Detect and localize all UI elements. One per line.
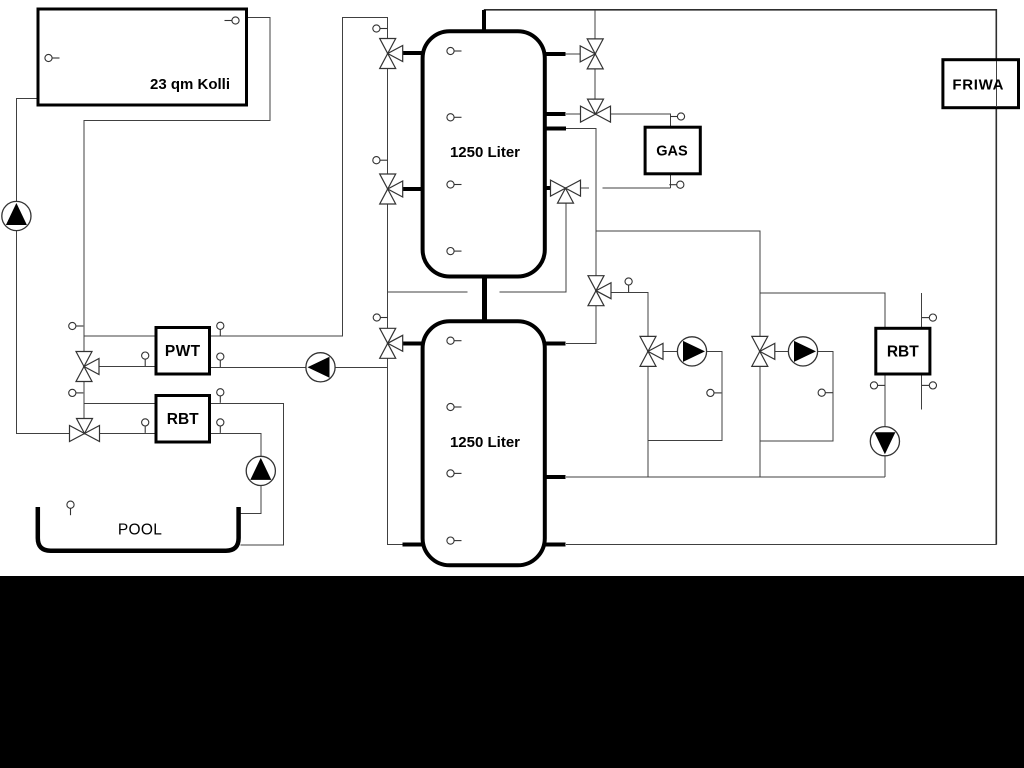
svg-text:RBT: RBT [887,344,919,361]
svg-text:PWT: PWT [165,343,201,360]
svg-text:1250 Liter: 1250 Liter [450,144,520,161]
svg-text:RBT: RBT [167,411,199,428]
svg-text:FRIWA: FRIWA [952,77,1004,94]
svg-text:GAS: GAS [656,144,688,160]
svg-text:23 qm Kolli: 23 qm Kolli [150,76,230,93]
svg-text:1250 Liter: 1250 Liter [450,434,520,451]
svg-text:POOL: POOL [118,521,162,538]
